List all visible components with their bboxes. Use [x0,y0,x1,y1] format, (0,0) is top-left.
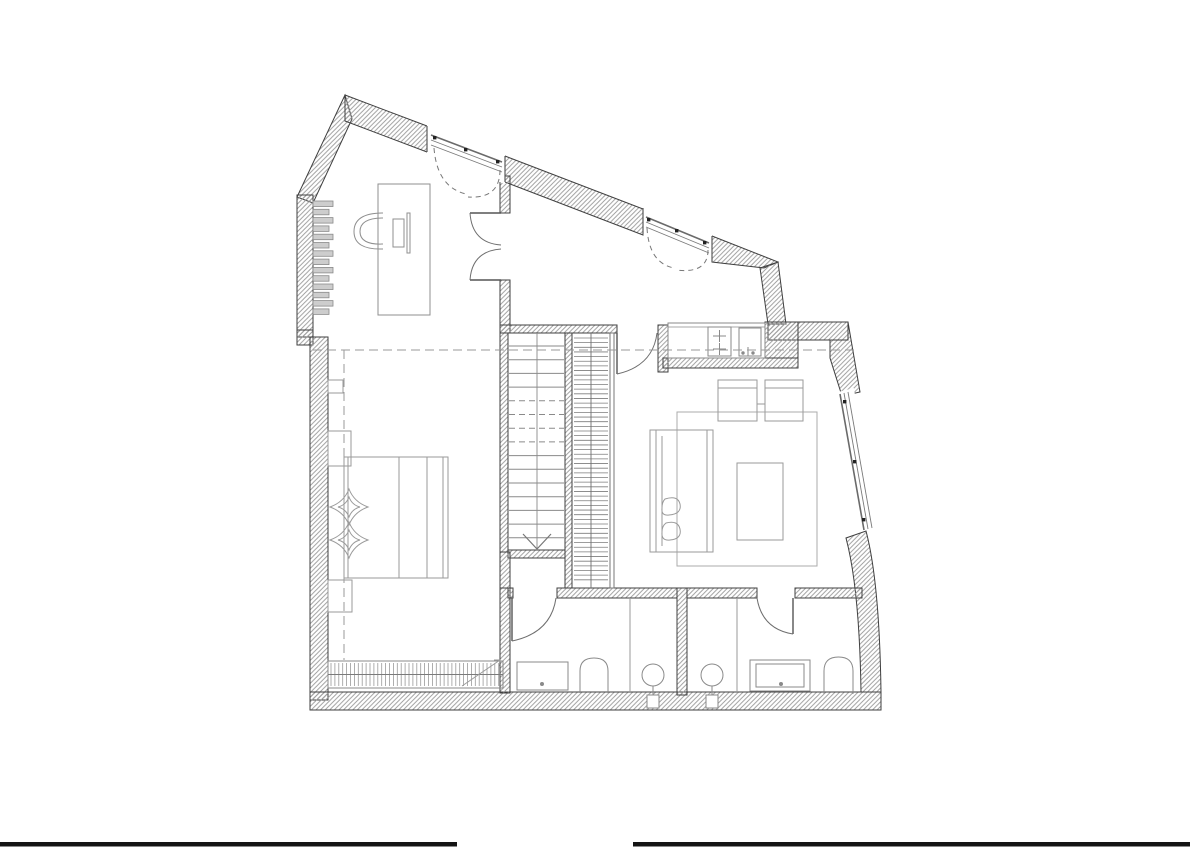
office-chair-inner [360,218,383,244]
water-heater-dot-1 [742,352,744,354]
stair-balustrade [610,333,614,588]
wall-bath-divider [677,588,687,695]
bathroom1-toilet [580,658,608,693]
sofa-pillow-2 [662,522,680,540]
bedroom-radiator [328,660,503,688]
wall-kitchen-under-counter [663,358,798,368]
bathroom2-toilet [824,657,853,694]
faucet-cross-2 [713,343,726,355]
wall-bath2-top-right [795,588,862,598]
kitchen-counter [668,323,765,358]
floor-plan [0,0,1200,848]
pillow-1 [330,489,368,525]
nightstand-bottom [328,580,352,612]
office-area [313,184,430,315]
footer-bars [0,842,1190,847]
bathroom2-drain-outlet [706,695,718,708]
office-radiator [313,201,333,314]
wall-bath1-top [557,588,677,598]
faucet-cross-1 [713,330,726,342]
sofa [650,430,713,552]
bathroom2-door [757,598,793,634]
wall-counter-right [765,322,798,358]
monitor [407,213,410,253]
wall-bottom [310,692,881,710]
wall-stair-mid [565,333,572,588]
bedroom-area [328,380,503,688]
bathroom1-shower-drain [642,664,664,686]
bathroom1-drain-outlet [647,695,659,708]
office-double-door [470,213,510,280]
french-window-office [427,124,505,197]
keyboard [393,219,404,247]
pillow-2 [330,522,368,558]
wall-left-upper [297,195,313,337]
bathroom1-door [512,598,556,641]
wall-top-band-office [345,95,427,152]
footer-bar-right [633,842,1190,847]
french-window-kitchen [643,206,712,271]
doors [470,213,793,641]
bathroom1-washbasin-drain [541,683,544,686]
sofa-pillow-1 [662,498,680,515]
wall-bath1-top-left [508,588,513,598]
armchair-2 [765,380,803,421]
bathroom2-washbasin [750,660,810,691]
bathroom2-shower-drain [701,664,723,686]
wall-landing-left [500,552,510,588]
wall-top-left-diagonal [297,95,352,203]
coffee-table [737,463,783,540]
stair-left-flight-treads [509,346,564,538]
wall-right-steep [760,262,786,324]
bathroom2-washbasin-drain [780,683,783,686]
wall-bath1-left [500,588,510,693]
window-right [838,388,872,533]
floor-plan-sheet [0,0,1200,848]
rug [677,412,817,566]
wall-top-band-right [712,236,778,268]
wall-bath2-top-left [687,588,757,598]
living-area [650,380,817,566]
desk [378,184,430,315]
wall-stair-top [500,325,617,333]
wall-pier [328,380,343,393]
footer-bar-left [0,842,457,847]
wall-top-band-middle [505,156,643,235]
water-heater-dot-2 [752,352,754,354]
wall-stair-left [500,333,508,552]
wall-right-lower [846,531,881,692]
wall-left-lower [310,337,328,700]
armchair-1 [718,380,757,421]
kitchen-door [617,333,657,374]
wall-stair-bottom [508,550,565,558]
bed [344,457,448,578]
